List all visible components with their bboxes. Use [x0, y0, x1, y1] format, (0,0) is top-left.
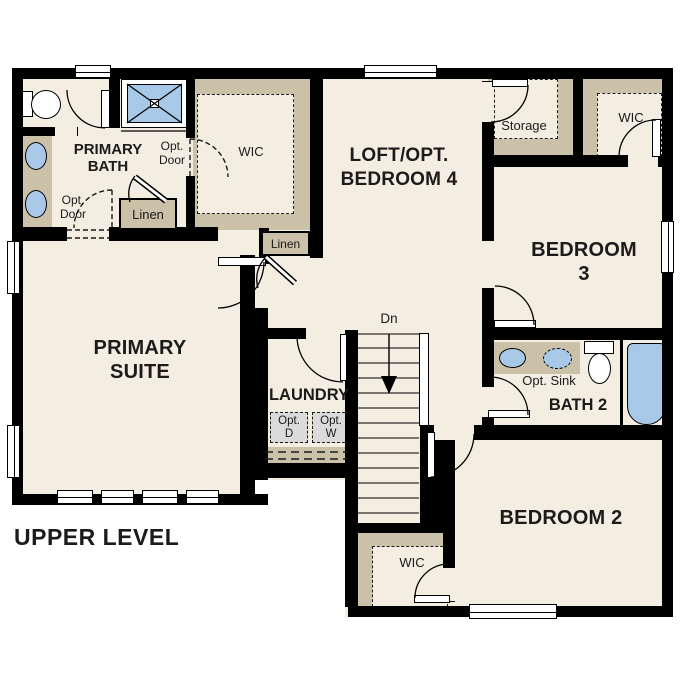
- sink-icon-primary-1: [25, 142, 47, 170]
- room-label-bedroom2: BEDROOM 2: [500, 506, 623, 530]
- wall: [482, 121, 494, 240]
- wall: [482, 328, 673, 340]
- opt-sink-label: Opt. Sink: [522, 373, 575, 388]
- room-label-wic-primary: WIC: [238, 144, 263, 159]
- room-label-loft-bedroom4: LOFT/OPT. BEDROOM 4: [341, 144, 458, 192]
- wall: [310, 68, 323, 258]
- laundry-counter: [262, 447, 350, 464]
- wall-tub-divider: [620, 340, 623, 425]
- opt-washer-label: Opt. W: [320, 415, 342, 441]
- wall: [12, 127, 55, 136]
- wall: [186, 68, 195, 138]
- room-label-laundry: LAUNDRY: [269, 386, 349, 404]
- room-label-primary-bath: PRIMARY BATH: [74, 141, 143, 175]
- doorway-toilet-room: [54, 127, 78, 136]
- wall: [482, 340, 494, 386]
- door-leaf-toilet-room: [101, 90, 110, 128]
- opt-sink-icon-bath2: [543, 348, 572, 369]
- window: [7, 241, 20, 294]
- room-label-storage: Storage: [501, 118, 547, 133]
- room-label-bath2: BATH 2: [549, 396, 607, 414]
- sink-icon-bath2: [499, 348, 526, 368]
- wall: [662, 68, 673, 617]
- stair-rail: [419, 333, 429, 426]
- wall: [482, 155, 627, 167]
- linen-closet-hall: Linen: [261, 231, 310, 256]
- toilet-icon-primary: [31, 90, 61, 119]
- wall: [473, 425, 673, 440]
- wall: [443, 533, 455, 567]
- opt-dryer-label: Opt. D: [278, 415, 300, 441]
- toilet-icon-bath2: [588, 353, 611, 384]
- door-leaf-wic-bedroom3: [652, 119, 661, 157]
- wall: [258, 328, 306, 339]
- doorway-bedroom2: [433, 425, 475, 440]
- opt-door-wic-label: Opt. Door: [159, 139, 185, 167]
- wall: [12, 227, 67, 241]
- doorway-storage: [482, 81, 494, 123]
- stairs-down-label: Dn: [380, 311, 397, 326]
- wall: [186, 176, 195, 232]
- room-label-bedroom3: BEDROOM 3: [531, 238, 637, 286]
- wall: [420, 425, 455, 533]
- doorway-bedroom3: [482, 240, 494, 289]
- sink-icon-primary-2: [25, 190, 47, 218]
- door-leaf-wic-bedroom2: [414, 595, 450, 603]
- bathtub-icon: [627, 343, 666, 425]
- window: [57, 490, 93, 504]
- window: [7, 425, 20, 478]
- plan-title: UPPER LEVEL: [14, 524, 179, 551]
- floor-plan: Opt. D Opt. W Linen Linen: [0, 0, 687, 687]
- opt-door-suite-label: Opt. Door: [60, 193, 86, 221]
- linen-closet-bath: Linen: [119, 198, 177, 230]
- window: [661, 221, 674, 273]
- wall: [12, 494, 268, 505]
- window: [469, 604, 557, 619]
- door-leaf-bedroom3: [494, 320, 536, 328]
- door-leaf-bath2: [488, 410, 530, 418]
- linen-bath-label: Linen: [132, 207, 164, 222]
- window: [101, 490, 134, 504]
- room-label-primary-suite: PRIMARY SUITE: [94, 336, 187, 384]
- room-label-wic-bedroom3: WIC: [618, 110, 643, 125]
- room-label-wic-bedroom2: WIC: [399, 555, 424, 570]
- window: [364, 65, 437, 78]
- door-leaf-primary-suite: [218, 257, 266, 266]
- window: [75, 65, 111, 78]
- door-leaf-storage: [492, 79, 528, 87]
- linen-hall-label: Linen: [271, 237, 300, 251]
- window: [142, 490, 178, 504]
- shower-drain-icon: [150, 99, 159, 108]
- door-leaf-laundry: [340, 334, 347, 381]
- window: [186, 490, 219, 504]
- wall: [573, 68, 583, 167]
- door-leaf-bedroom2: [427, 432, 435, 478]
- wall: [252, 463, 358, 478]
- opt-dryer-box: Opt. D: [270, 412, 308, 443]
